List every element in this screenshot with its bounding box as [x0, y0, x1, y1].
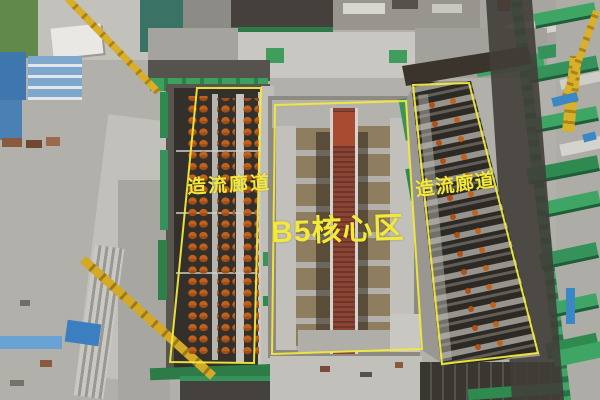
annotation-label-left-corridor: 造流廊道 [186, 168, 271, 199]
overlay-graphics [0, 0, 600, 400]
orange-equipment-column [217, 98, 235, 358]
annotation-label-core-area: B5核心区 [270, 203, 405, 252]
orange-equipment-column [186, 96, 210, 358]
aerial-construction-photo: 造流廊道 B5核心区 造流廊道 [0, 0, 600, 400]
